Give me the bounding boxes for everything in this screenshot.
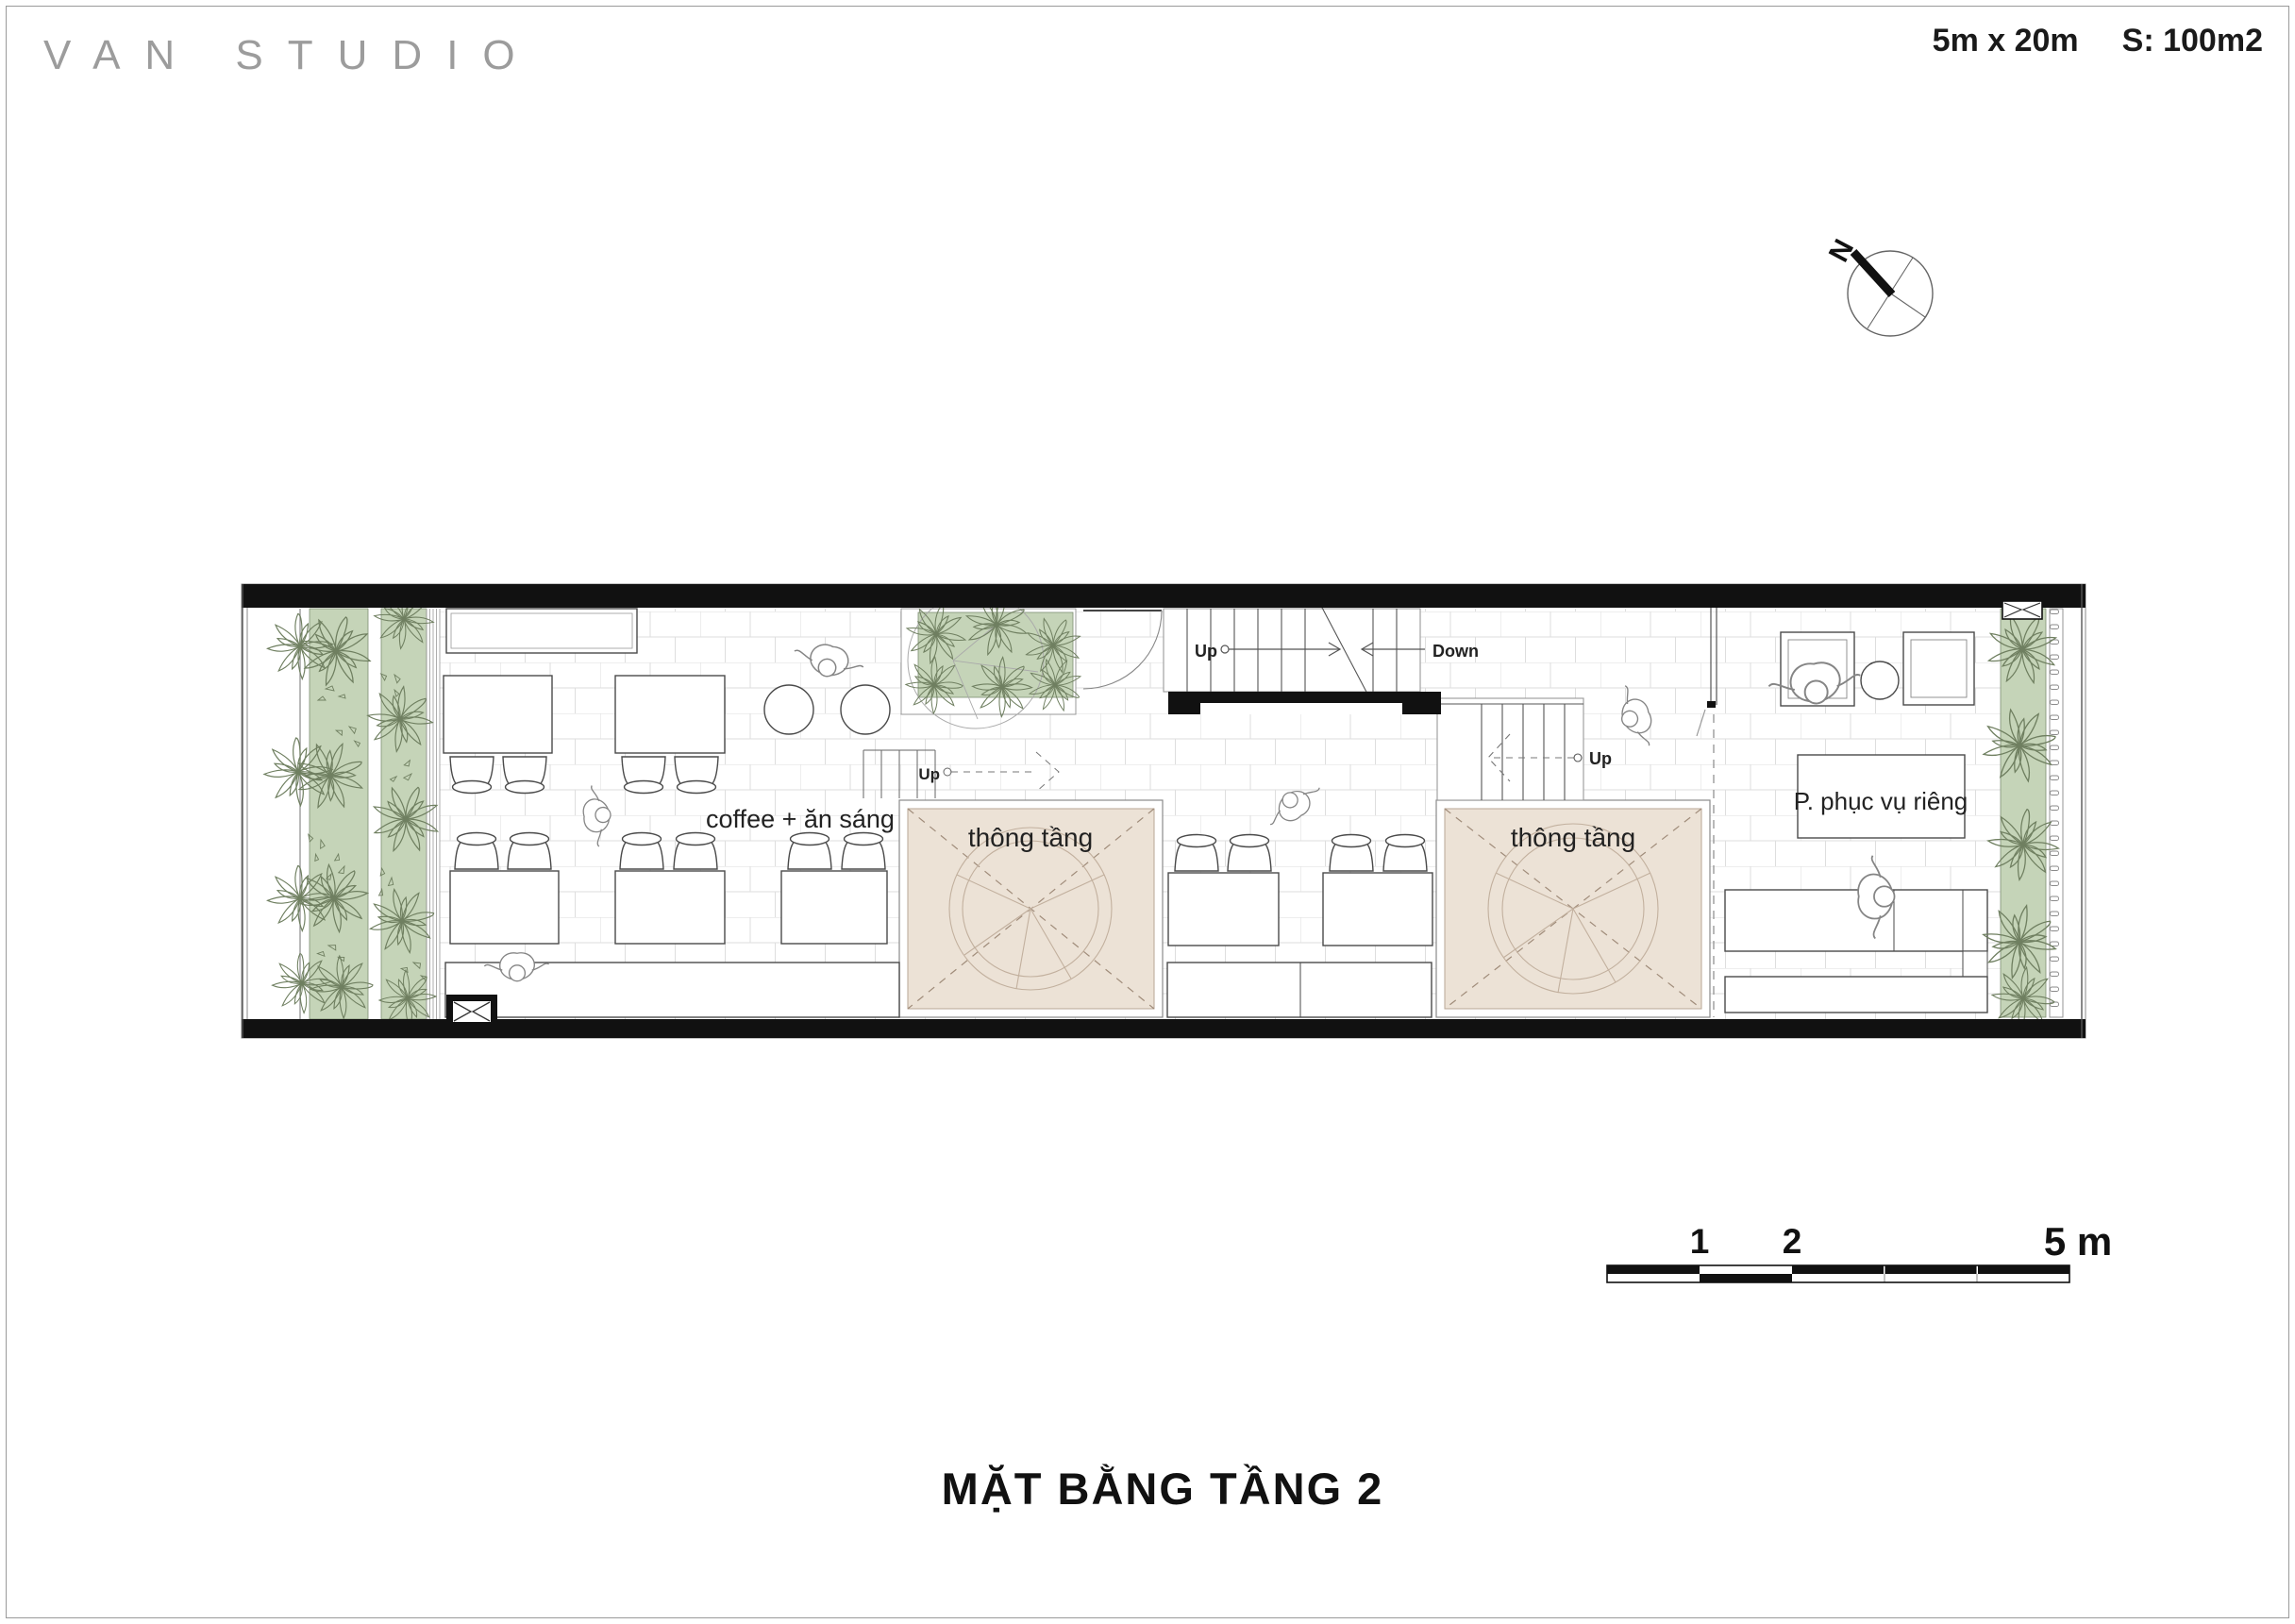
chair-icon xyxy=(674,833,717,870)
floor-plan-drawing: coffee + ăn sáng thông tầng thông tầng P… xyxy=(0,0,2295,1624)
stair-handrail xyxy=(1200,703,1402,714)
private-room-label: P. phục vụ riêng xyxy=(1794,787,1968,815)
wall-bench xyxy=(446,609,637,653)
floor-plan-sheet: VAN STUDIO 5m x 20m S: 100m2 xyxy=(0,0,2295,1624)
cafe-table xyxy=(615,676,725,753)
north-compass: N xyxy=(1823,234,1933,336)
drawing-title: MẶT BẰNG TẦNG 2 xyxy=(942,1463,1384,1515)
chair-icon xyxy=(675,757,718,794)
chair-icon xyxy=(788,833,831,870)
chair-icon xyxy=(1383,835,1427,872)
north-letter: N xyxy=(1823,234,1860,267)
cafe-table xyxy=(1168,873,1279,946)
kitchen-counter xyxy=(1725,890,1987,951)
cafe-table xyxy=(781,871,887,944)
chair-icon xyxy=(622,757,665,794)
kitchen-counter-low xyxy=(1725,977,1987,1013)
north-needle-icon xyxy=(1853,252,1892,294)
void-right-label: thông tầng xyxy=(1511,823,1635,852)
bottom-wall xyxy=(242,1019,2086,1038)
cafe-table xyxy=(615,871,725,944)
cafe-label: coffee + ăn sáng xyxy=(706,805,895,833)
stair-up-left-label: Up xyxy=(918,765,940,783)
round-table xyxy=(841,685,890,734)
louver-ladder xyxy=(2050,609,2063,1017)
stair-down-label: Down xyxy=(1432,642,1479,661)
cafe-table xyxy=(1323,873,1432,946)
scale-bar: 1 2 5 m xyxy=(1607,1219,2112,1282)
top-wall xyxy=(242,584,2086,608)
plan: coffee + ăn sáng thông tầng thông tầng P… xyxy=(242,583,2086,1038)
scale-tick-2: 2 xyxy=(1783,1222,1802,1261)
void-left-label: thông tầng xyxy=(968,823,1093,852)
chair-icon xyxy=(1228,835,1271,872)
chair-icon xyxy=(842,833,885,870)
cafe-table xyxy=(450,871,559,944)
scale-tick-1: 1 xyxy=(1690,1222,1710,1261)
stair-up-label: Up xyxy=(1195,642,1217,661)
secondary-staircase xyxy=(1437,698,1583,800)
chair-icon xyxy=(455,833,498,870)
planting-strip-b xyxy=(381,609,427,1019)
cafe-table xyxy=(444,676,552,753)
armchair xyxy=(1903,632,1974,705)
chair-icon xyxy=(503,757,546,794)
banquette-bench xyxy=(1167,963,1432,1017)
round-table xyxy=(764,685,813,734)
chair-icon xyxy=(1175,835,1218,872)
chair-icon xyxy=(508,833,551,870)
stair-up-right-label: Up xyxy=(1589,749,1612,768)
chair-icon xyxy=(1330,835,1373,872)
chair-icon xyxy=(450,757,494,794)
scale-tick-5m: 5 m xyxy=(2044,1219,2112,1264)
side-table xyxy=(1861,661,1899,699)
chair-icon xyxy=(620,833,663,870)
